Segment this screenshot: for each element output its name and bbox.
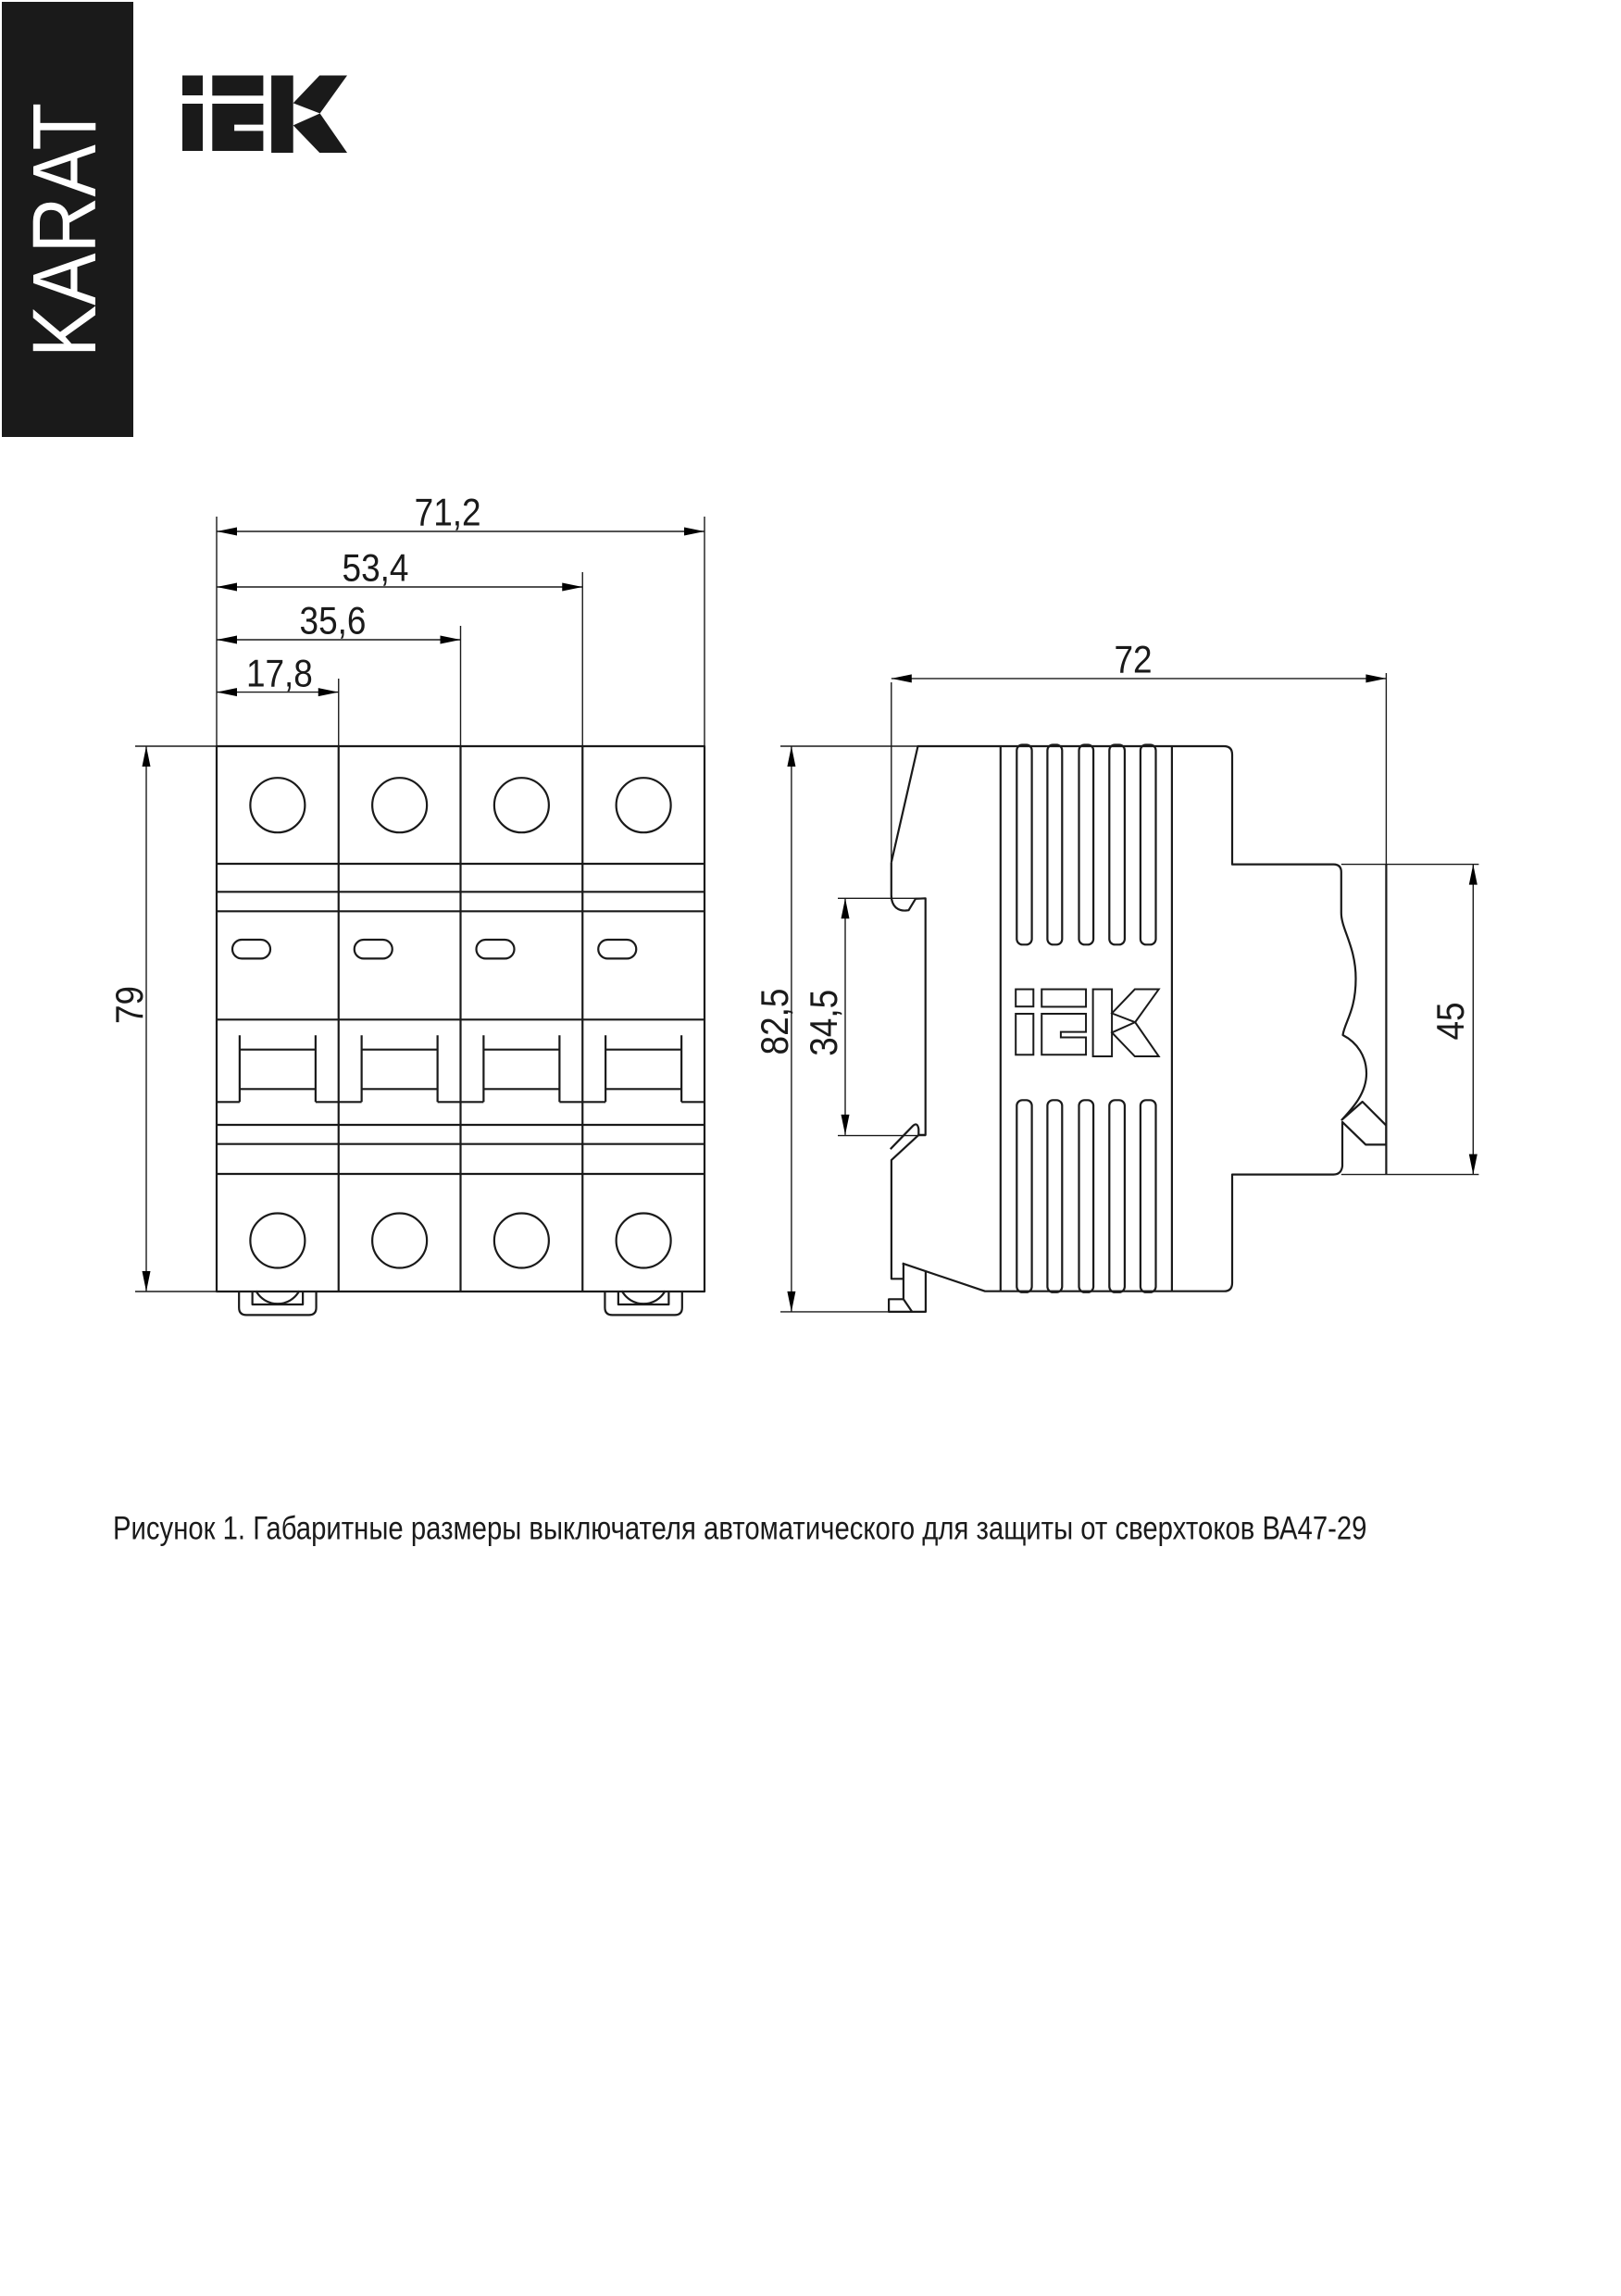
svg-text:82,5: 82,5 xyxy=(754,989,797,1055)
svg-text:71,2: 71,2 xyxy=(415,492,481,535)
svg-text:34,5: 34,5 xyxy=(803,990,846,1056)
svg-text:72: 72 xyxy=(1114,638,1152,681)
svg-text:79: 79 xyxy=(108,986,152,1024)
svg-text:45: 45 xyxy=(1429,1002,1473,1040)
svg-text:Рисунок 1. Габаритные размеры: Рисунок 1. Габаритные размеры выключател… xyxy=(113,1510,1366,1546)
svg-text:KARAT: KARAT xyxy=(16,103,116,357)
svg-text:17,8: 17,8 xyxy=(246,652,313,695)
svg-text:53,4: 53,4 xyxy=(343,547,409,591)
svg-text:35,6: 35,6 xyxy=(300,600,367,643)
